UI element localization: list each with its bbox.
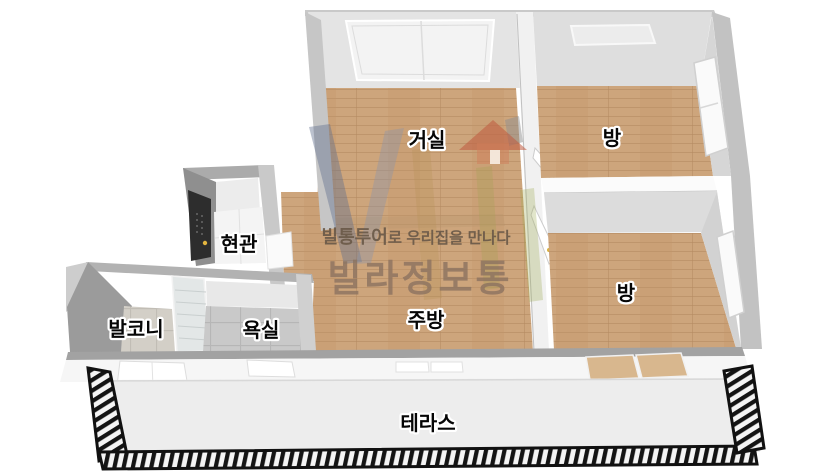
house-icon-door [490, 150, 500, 164]
watermark-tagline: 빌통투어로 우리집을 만나다 [322, 227, 512, 247]
room-label-entrance: 현관 [221, 233, 258, 256]
bedrooms-divider-wall [541, 176, 717, 193]
bedroom-top-floor [537, 86, 713, 178]
entrance-door [188, 190, 211, 261]
room-label-bathroom: 욕실 [243, 319, 280, 342]
room-label-balcony: 발코니 [108, 318, 163, 341]
bedroom-threshold-left [586, 355, 639, 380]
room-label-living: 거실 [409, 129, 446, 152]
entrance-door-handle [203, 241, 207, 245]
watermark-brand: 빌라정보통 [327, 258, 512, 299]
bathroom-back-wall [206, 281, 299, 308]
room-label-terrace: 테라스 [400, 412, 455, 435]
bedroom-bottom-north-wall [544, 191, 723, 233]
entrance-cabinet [266, 232, 293, 269]
living-window [346, 20, 494, 81]
room-label-kitchen: 주방 [408, 309, 445, 332]
bedroom-threshold-right [636, 353, 688, 378]
bathroom-exterior-window [247, 360, 295, 377]
bedroom-top-ceiling-panel [571, 25, 655, 45]
floorplan-image: 빌통투어로 우리집을 만나다 빌라정보통 거실 방 방 현관 발코니 욕실 주방… [0, 0, 840, 472]
kitchen-step-right [431, 362, 463, 372]
bedroom-top-north-wall [533, 12, 712, 86]
room-label-bedroom-bottom: 방 [617, 282, 636, 305]
kitchen-step-left [396, 362, 429, 372]
room-label-bedroom-top: 방 [603, 127, 622, 150]
